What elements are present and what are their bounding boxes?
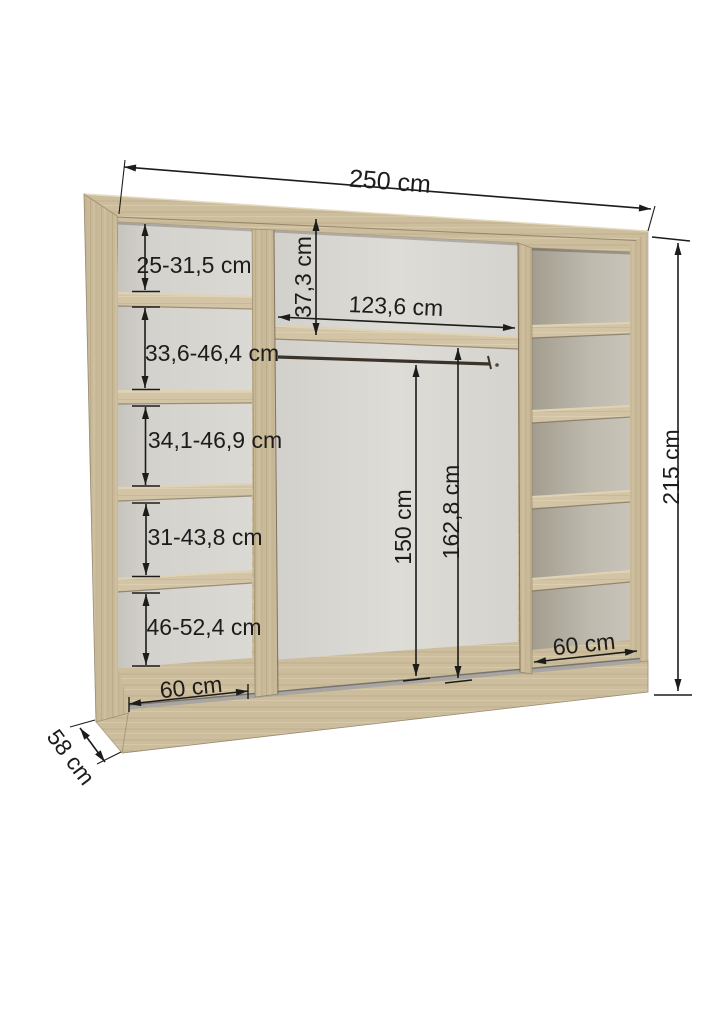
middle-height-label: 162,8 cm: [438, 465, 464, 560]
left-shelf-3-label: 34,1-46,9 cm: [148, 427, 282, 453]
middle-width-label: 123,6 cm: [348, 291, 444, 321]
right-wall-face: [630, 232, 648, 692]
left-shelf-4-label: 31-43,8 cm: [147, 524, 262, 550]
wardrobe-dimension-diagram: 250 cm 25-31,5 cm 33,6-46,4 cm 34,1-46,9…: [0, 0, 724, 1024]
top-gap-height-label: 37,3 cm: [290, 236, 316, 318]
total-width-label: 250 cm: [348, 165, 432, 199]
wardrobe-dimension-diagram-page: 250 cm 25-31,5 cm 33,6-46,4 cm 34,1-46,9…: [0, 0, 724, 1024]
rail-height-label: 150 cm: [390, 489, 416, 564]
left-shelf-2: [118, 390, 252, 404]
left-shelf-5-label: 46-52,4 cm: [146, 614, 261, 640]
depth-label: 58 cm: [42, 724, 100, 790]
left-shelf-1-label: 25-31,5 cm: [136, 252, 251, 278]
right-shelf-column: [532, 248, 630, 670]
partition-right: [518, 243, 532, 674]
left-shelf-2-label: 33,6-46,4 cm: [145, 340, 279, 366]
total-height-label: 215 cm: [658, 429, 684, 504]
